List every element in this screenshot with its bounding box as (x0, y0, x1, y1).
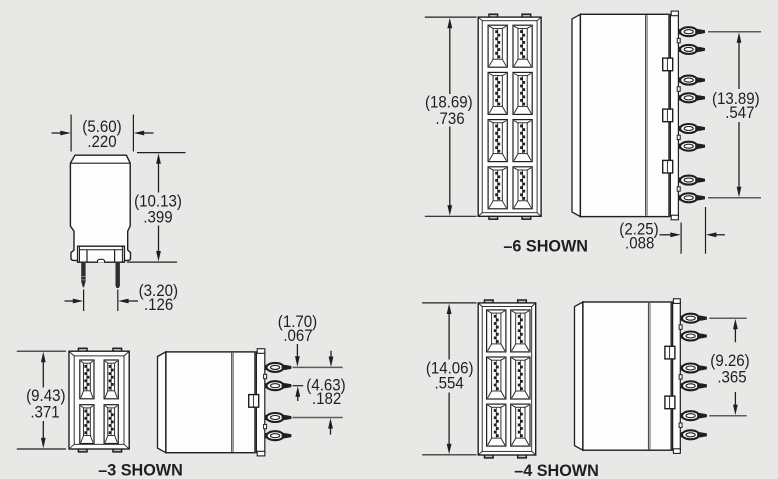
svg-text:.220: .220 (87, 133, 116, 151)
svg-text:.088: .088 (625, 235, 654, 253)
svg-text:.554: .554 (434, 374, 463, 392)
svg-text:(9.43): (9.43) (26, 387, 65, 405)
svg-text:.365: .365 (717, 369, 746, 387)
svg-text:(9.26): (9.26) (710, 352, 749, 370)
svg-text:.182: .182 (312, 390, 341, 408)
svg-text:–6 SHOWN: –6 SHOWN (503, 238, 588, 256)
svg-text:.067: .067 (283, 327, 312, 345)
svg-text:.547: .547 (725, 104, 754, 122)
svg-text:.736: .736 (435, 110, 464, 128)
svg-text:–3 SHOWN: –3 SHOWN (98, 462, 183, 479)
svg-text:.399: .399 (143, 209, 172, 227)
svg-text:.126: .126 (144, 296, 173, 314)
svg-text:–4 SHOWN: –4 SHOWN (514, 462, 599, 479)
svg-text:.371: .371 (30, 403, 59, 421)
